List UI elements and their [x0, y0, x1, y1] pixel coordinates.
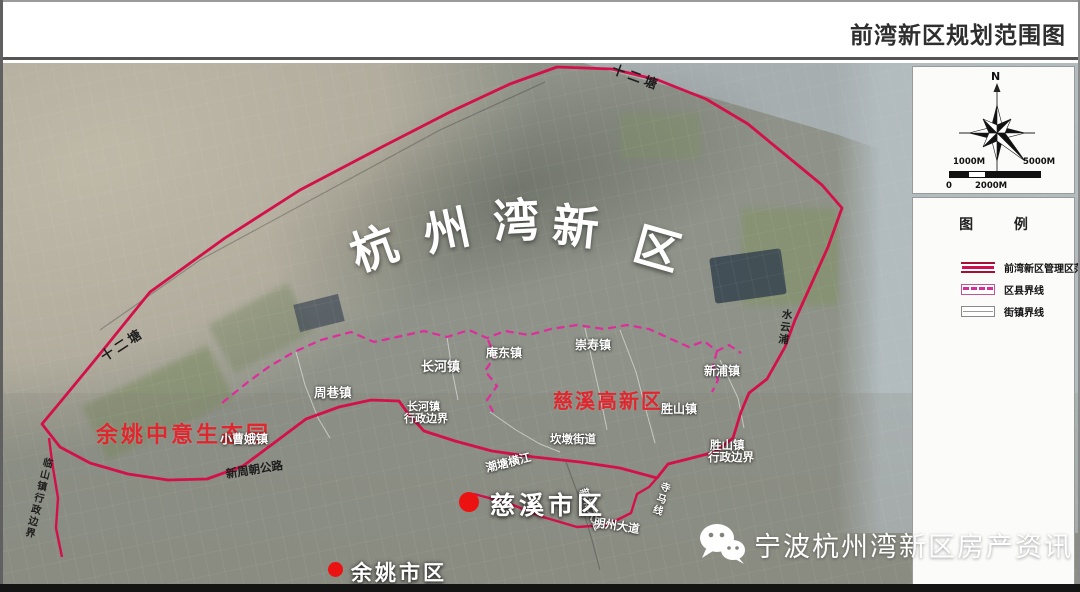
label-changhe-admin-boundary-line2: 行政边界	[404, 413, 448, 425]
planning-map-page: 杭 州 湾 新 区 余姚中意生态园 慈溪高新区 十二塘 十二塘 小曹娥镇 周巷镇…	[0, 0, 1080, 592]
label-xinpu-town: 新浦镇	[704, 365, 740, 378]
legend-item-county-line: 区县界线	[961, 282, 1044, 297]
legend-item-qianwan-boundary: 前湾新区管理区范围	[961, 260, 1080, 275]
legend-title: 图 例	[913, 214, 1074, 234]
label-changhe-town: 长河镇	[421, 361, 460, 375]
magenta-dashed-line-swatch	[961, 284, 995, 295]
label-kandun-subdistrict: 坎墩街道	[550, 433, 596, 446]
label-xiaocaoe-town: 小曹娥镇	[220, 433, 268, 446]
page-title: 前湾新区规划范围图	[850, 16, 1066, 50]
label-chongshou-town: 崇寿镇	[575, 339, 611, 352]
label-shengshan-town: 胜山镇	[661, 403, 697, 416]
left-border	[0, 0, 3, 592]
label-zhouxiang-town: 周巷镇	[314, 386, 352, 400]
watermark-text: 宁波杭州湾新区房产资讯	[754, 525, 1073, 564]
label-shengshan-admin-boundary-line2: 行政边界	[708, 451, 754, 464]
scale-label-5000m: 5000M	[1023, 157, 1055, 167]
yuyao-city-dot	[328, 562, 343, 577]
gray-thin-line-swatch	[961, 306, 995, 317]
area-label-cixi-hitech: 慈溪高新区	[553, 390, 663, 412]
legend-item-street-line: 街镇界线	[961, 304, 1044, 319]
scale-bar	[949, 171, 1041, 178]
red-double-line-swatch	[961, 262, 995, 273]
compass-panel: N 1000M 5000M 0 2000M	[912, 66, 1075, 194]
north-label: N	[991, 70, 1000, 83]
scale-label-0: 0	[946, 181, 952, 191]
legend-item-label: 前湾新区管理区范围	[1004, 260, 1080, 275]
wechat-icon	[698, 523, 746, 565]
legend-item-label: 区县界线	[1004, 282, 1044, 297]
big-label-char: 新	[550, 189, 603, 259]
big-label-char: 湾	[491, 184, 540, 252]
title-bar: 前湾新区规划范围图	[0, 2, 1080, 60]
label-andong-town: 庵东镇	[486, 347, 522, 360]
scale-label-1000m: 1000M	[953, 157, 985, 167]
legend-item-label: 街镇界线	[1004, 304, 1044, 319]
bottom-bar	[0, 584, 1080, 592]
cixi-city-label: 慈溪市区	[490, 486, 606, 522]
watermark: 宁波杭州湾新区房产资讯	[698, 523, 1073, 565]
scale-bar-gap	[968, 171, 986, 178]
yuyao-city-label: 余姚市区	[351, 557, 447, 587]
cixi-city-dot	[459, 492, 479, 512]
scale-label-2000m: 2000M	[975, 181, 1007, 191]
top-border	[0, 0, 1080, 2]
